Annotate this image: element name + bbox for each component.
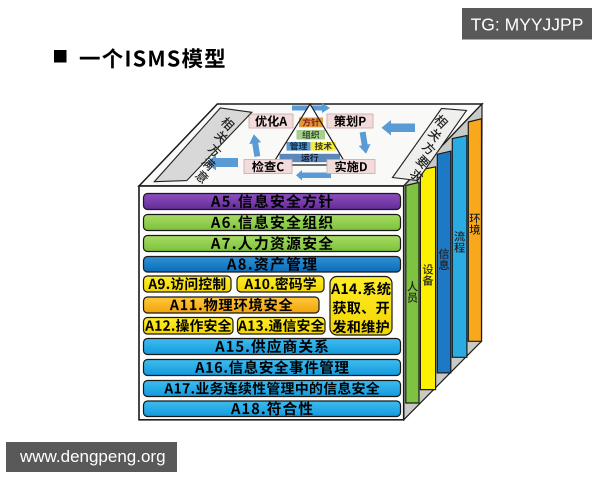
svg-text:TG: MYYJJPP: TG: MYYJJPP — [471, 15, 584, 35]
svg-text:www.dengpeng.org: www.dengpeng.org — [19, 447, 166, 466]
